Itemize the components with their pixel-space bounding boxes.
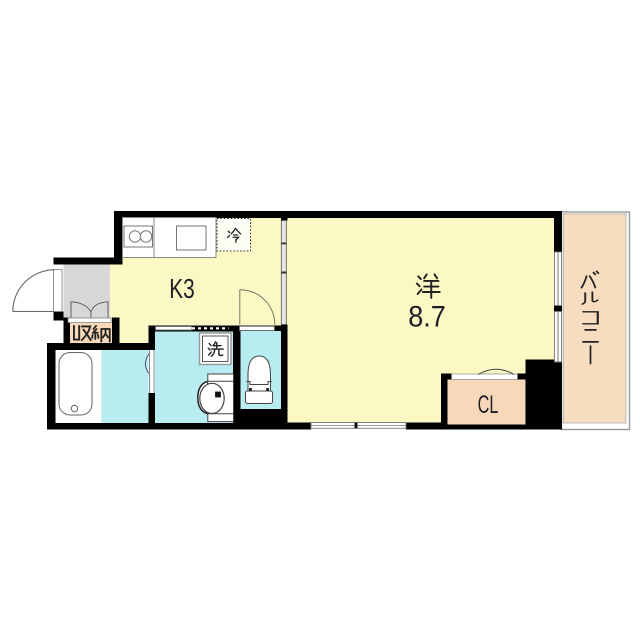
- svg-text:8.7: 8.7: [408, 300, 446, 334]
- svg-text:K3: K3: [169, 274, 195, 305]
- svg-text:CL: CL: [478, 392, 499, 419]
